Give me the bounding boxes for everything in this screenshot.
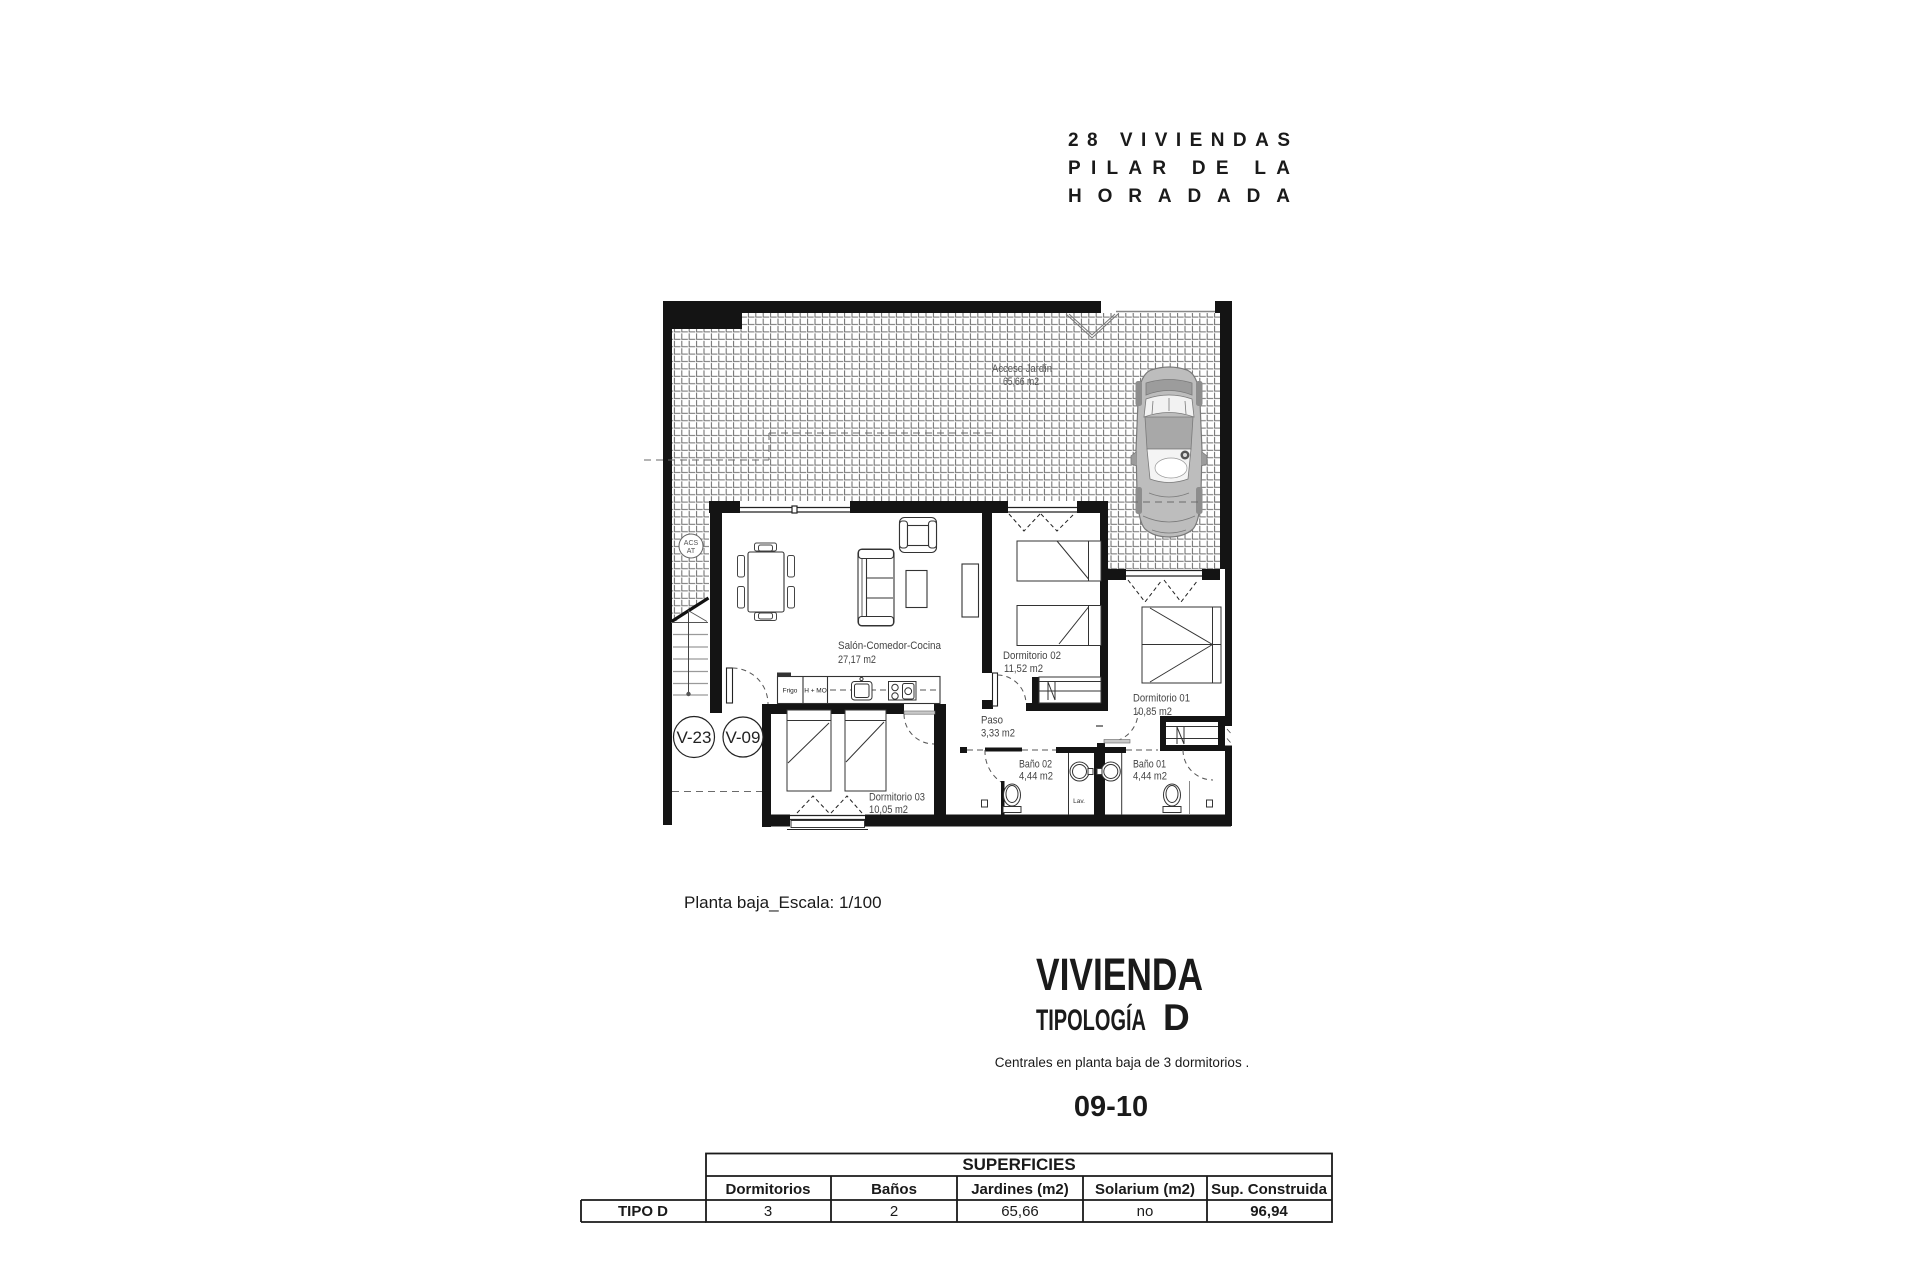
svg-text:27,17 m2: 27,17 m2 xyxy=(838,654,876,666)
svg-text:4,44 m2: 4,44 m2 xyxy=(1019,771,1053,783)
svg-text:SUPERFICIES: SUPERFICIES xyxy=(962,1155,1075,1174)
svg-text:2: 2 xyxy=(890,1203,898,1220)
svg-text:H + MO: H + MO xyxy=(804,688,827,695)
svg-text:Frigo: Frigo xyxy=(783,688,798,695)
svg-text:Dormitorios: Dormitorios xyxy=(725,1181,810,1198)
svg-text:no: no xyxy=(1137,1203,1154,1220)
svg-text:Dormitorio 02: Dormitorio 02 xyxy=(1003,650,1061,662)
svg-text:Dormitorio 01: Dormitorio 01 xyxy=(1133,693,1190,705)
svg-text:Planta baja_Escala: 1/100: Planta baja_Escala: 1/100 xyxy=(684,893,882,912)
svg-text:Baño 02: Baño 02 xyxy=(1019,759,1052,771)
svg-text:09-10: 09-10 xyxy=(1074,1091,1148,1123)
svg-text:TIPO D: TIPO D xyxy=(618,1203,668,1220)
svg-text:D: D xyxy=(1163,997,1190,1038)
svg-text:ACS: ACS xyxy=(684,540,699,547)
svg-text:3: 3 xyxy=(764,1203,772,1220)
svg-text:Jardines (m2): Jardines (m2) xyxy=(971,1181,1069,1198)
svg-text:Centrales en planta baja de 3: Centrales en planta baja de 3 dormitorio… xyxy=(995,1055,1249,1070)
svg-text:Baño 01: Baño 01 xyxy=(1133,759,1166,771)
svg-text:Salón-Comedor-Cocina: Salón-Comedor-Cocina xyxy=(838,640,942,652)
svg-text:TIPOLOGÍA: TIPOLOGÍA xyxy=(1036,1003,1146,1037)
svg-text:Paso: Paso xyxy=(981,715,1003,727)
svg-text:Lav.: Lav. xyxy=(1073,798,1085,805)
svg-text:4,44 m2: 4,44 m2 xyxy=(1133,771,1167,783)
svg-text:Solarium (m2): Solarium (m2) xyxy=(1095,1181,1195,1198)
svg-text:V-23: V-23 xyxy=(677,728,712,747)
svg-text:10,05 m2: 10,05 m2 xyxy=(869,804,908,816)
svg-text:VIVIENDA: VIVIENDA xyxy=(1036,949,1203,1000)
svg-text:Sup. Construida: Sup. Construida xyxy=(1211,1181,1327,1198)
svg-text:65,66: 65,66 xyxy=(1001,1203,1039,1220)
svg-text:AT: AT xyxy=(687,548,696,555)
svg-text:96,94: 96,94 xyxy=(1250,1203,1288,1220)
svg-text:Baños: Baños xyxy=(871,1181,917,1198)
svg-text:Dormitorio 03: Dormitorio 03 xyxy=(869,792,925,804)
svg-text:10,85 m2: 10,85 m2 xyxy=(1133,706,1172,718)
svg-text:11,52 m2: 11,52 m2 xyxy=(1004,663,1043,675)
svg-text:Acceso Jardín: Acceso Jardín xyxy=(992,363,1052,375)
svg-text:3,33 m2: 3,33 m2 xyxy=(981,728,1015,740)
svg-text:V-09: V-09 xyxy=(726,728,761,747)
svg-text:65,66 m2: 65,66 m2 xyxy=(1003,376,1039,388)
